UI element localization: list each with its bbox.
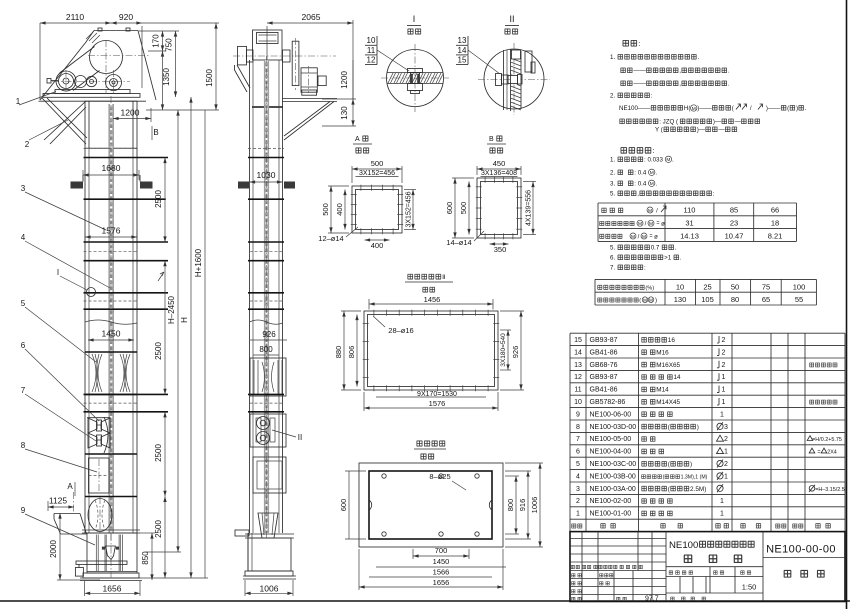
svg-text:75: 75 [762,282,770,291]
svg-text:): ) [690,461,692,468]
svg-text:1576: 1576 [102,226,121,236]
svg-text:6: 6 [21,341,26,350]
svg-text:600: 600 [339,499,348,512]
svg-text:1: 1 [722,374,726,381]
svg-text:NE100-03B-00: NE100-03B-00 [590,473,636,480]
svg-text:.: . [672,157,674,164]
svg-text:M: M [638,221,642,227]
svg-text:2500: 2500 [154,520,163,538]
svg-text:2X4: 2X4 [827,450,837,456]
svg-text:M16: M16 [656,349,669,356]
svg-text:400: 400 [335,203,344,216]
svg-text:8: 8 [21,441,26,450]
svg-text:12: 12 [367,55,376,64]
svg-text:806: 806 [347,346,356,359]
svg-text:2: 2 [722,362,726,369]
svg-text:14: 14 [458,46,467,55]
svg-text:50: 50 [731,282,739,291]
svg-text:3X152=456: 3X152=456 [359,170,395,177]
svg-text:,: , [679,68,681,75]
svg-text:2: 2 [722,349,726,356]
svg-text:3X136=408: 3X136=408 [481,170,517,177]
svg-text:2065: 2065 [302,12,321,22]
svg-text:1: 1 [720,498,724,505]
svg-text:A: A [67,482,73,491]
svg-text:12: 12 [574,374,582,381]
svg-text:M: M [666,157,670,163]
svg-text:I: I [413,14,416,24]
svg-text:0.7: 0.7 [651,245,660,252]
svg-text::: : [638,39,640,48]
svg-text:M: M [631,234,635,240]
svg-text:1350: 1350 [162,68,171,86]
svg-text:400: 400 [371,241,384,250]
svg-text:)——: )—— [697,105,712,112]
svg-text:23: 23 [730,219,738,228]
svg-text:NE100-04-00: NE100-04-00 [590,449,632,456]
svg-text:1656: 1656 [103,584,122,594]
svg-text:3: 3 [724,424,728,431]
svg-text:9X170=1530: 9X170=1530 [417,391,457,398]
svg-text:31: 31 [685,219,693,228]
svg-text:)—: )— [697,127,706,134]
svg-text:1: 1 [720,511,724,518]
svg-text:NE100-00-00: NE100-00-00 [766,544,836,556]
svg-text:55: 55 [795,295,803,304]
svg-text:2.: 2. [610,170,615,177]
svg-text:2.: 2. [610,93,615,100]
svg-text:.: . [655,181,657,188]
svg-text:Ⅱ: Ⅱ [442,274,445,281]
svg-text:15: 15 [574,337,582,344]
svg-text::: : [644,265,646,272]
svg-text:14: 14 [674,374,682,381]
svg-text:——: —— [633,81,646,88]
svg-text:800: 800 [259,345,273,354]
svg-text:)—: )— [713,119,722,126]
svg-text::: : [651,93,653,100]
svg-text:NE100: NE100 [669,540,698,551]
svg-text:2110: 2110 [66,12,85,22]
svg-text:85: 85 [730,206,738,215]
svg-text:4X139=556: 4X139=556 [526,190,533,226]
svg-text:: JZQ (: : JZQ ( [659,119,679,126]
svg-text:920: 920 [119,12,133,22]
svg-text:B: B [489,136,494,143]
svg-text:5: 5 [576,461,580,468]
svg-text:1200: 1200 [121,108,140,118]
svg-text:12–ø14: 12–ø14 [318,234,343,243]
svg-text:NE100-06-00: NE100-06-00 [590,411,632,418]
svg-text:14: 14 [574,349,582,356]
svg-text:.: . [728,68,730,75]
svg-text:GB93-87: GB93-87 [590,337,618,344]
svg-text:6.: 6. [610,255,615,262]
svg-text:2.5M): 2.5M) [690,486,706,493]
svg-text:ø: ø [661,222,665,228]
svg-text:10: 10 [574,399,582,406]
svg-text:GB41-86: GB41-86 [590,387,618,394]
svg-text:3: 3 [576,486,580,493]
svg-text:1566: 1566 [433,568,450,577]
svg-text:.: . [655,170,657,177]
svg-text:1: 1 [720,411,724,418]
svg-text:H+1600: H+1600 [194,248,203,277]
svg-text:105: 105 [701,295,714,304]
svg-text:7: 7 [21,386,26,395]
svg-text:110: 110 [684,206,696,215]
svg-text:18: 18 [771,219,779,228]
svg-text:): ) [796,105,798,112]
svg-text:NE100-05-00: NE100-05-00 [590,436,632,443]
svg-text:1006: 1006 [530,497,539,514]
svg-text:8: 8 [576,424,580,431]
svg-text:——: —— [633,68,646,75]
svg-text:: 0.4: : 0.4 [634,170,647,177]
svg-text:1: 1 [722,387,726,394]
svg-text:500: 500 [459,202,468,215]
svg-text:1: 1 [724,449,728,456]
svg-text:M: M [649,221,653,227]
svg-text:25: 25 [703,282,711,291]
svg-text:NE100-02-00: NE100-02-00 [590,498,632,505]
svg-text:1006: 1006 [260,584,279,594]
svg-text:100: 100 [793,282,806,291]
svg-text:1: 1 [16,97,21,106]
svg-text:10.47: 10.47 [725,231,744,240]
svg-text:M: M [649,298,653,304]
svg-text:1.: 1. [610,157,615,164]
svg-text:2: 2 [576,498,580,505]
svg-text:130: 130 [340,106,349,120]
svg-text:GB93-87: GB93-87 [590,374,618,381]
svg-text:ø: ø [654,234,658,240]
svg-text:1450: 1450 [102,329,121,339]
svg-text:7.: 7. [610,265,615,272]
svg-text:2: 2 [25,140,30,149]
svg-text:170: 170 [152,34,161,48]
svg-text:2500: 2500 [154,342,163,360]
svg-text:1450: 1450 [433,557,450,566]
svg-text:1.: 1. [610,54,615,61]
svg-text:850: 850 [141,551,150,565]
svg-text:M16X65: M16X65 [656,362,680,369]
svg-text:M: M [642,234,646,240]
svg-text:600: 600 [445,202,454,215]
svg-text:66: 66 [771,206,779,215]
svg-text:926: 926 [511,346,520,359]
svg-text:1656: 1656 [433,578,450,587]
svg-text:800: 800 [506,499,515,512]
svg-text:1125: 1125 [49,496,68,506]
svg-text:3.: 3. [610,181,615,188]
svg-text:11: 11 [574,387,581,394]
svg-text:5.: 5. [610,245,615,252]
svg-text:2: 2 [722,337,726,344]
svg-text:NE100——: NE100—— [619,105,651,112]
svg-text:,: , [637,191,639,198]
svg-text:2: 2 [724,461,728,468]
svg-text:1: 1 [576,511,580,518]
svg-text:1030: 1030 [257,170,276,180]
svg-text:9: 9 [21,506,26,515]
svg-text:1576: 1576 [429,399,446,408]
svg-text:M14X45: M14X45 [656,399,680,406]
svg-text:.: . [675,245,677,252]
svg-text:1680: 1680 [102,163,121,173]
svg-text:4: 4 [576,473,580,480]
svg-text:916: 916 [518,499,527,512]
svg-text:65: 65 [762,295,770,304]
svg-text:NE100-03A-00: NE100-03A-00 [590,486,636,493]
svg-text:13: 13 [574,362,582,369]
svg-text:NE100-01-00: NE100-01-00 [590,511,632,518]
svg-text:880: 880 [334,346,343,359]
svg-text:M14: M14 [656,387,669,394]
svg-text:8–ø25: 8–ø25 [429,472,450,481]
svg-text:11: 11 [367,46,376,55]
svg-text:350: 350 [494,245,507,254]
svg-text:5: 5 [21,299,26,308]
svg-text:: 0.033: : 0.033 [644,157,663,164]
svg-text:.: . [728,81,730,88]
svg-text::: : [713,191,715,198]
svg-text:500: 500 [321,203,330,216]
svg-text:=: = [649,233,652,239]
svg-text:6: 6 [576,449,580,456]
svg-text:.: . [805,105,807,112]
svg-text:1500: 1500 [205,69,214,87]
svg-text:): ) [655,298,657,304]
svg-text:3X180=540: 3X180=540 [500,333,507,367]
svg-text:H–2450: H–2450 [167,295,176,324]
svg-text:700: 700 [435,546,448,555]
svg-text:M: M [650,170,654,176]
svg-text:1.3M),1 (M): 1.3M),1 (M) [681,474,708,480]
svg-text:1: 1 [724,473,728,480]
svg-text:4: 4 [21,233,26,242]
svg-text:GB41-86: GB41-86 [590,349,618,356]
svg-text:.: . [698,54,700,61]
svg-text:NE100-03D-00: NE100-03D-00 [590,424,637,431]
svg-text:.: . [680,255,682,262]
svg-text:8.21: 8.21 [768,231,783,240]
svg-text:3X152=456: 3X152=456 [406,191,413,227]
svg-text:: 0.4: : 0.4 [634,181,647,188]
svg-text:130: 130 [674,295,687,304]
svg-text:I: I [57,268,59,277]
svg-text:16: 16 [668,337,676,344]
svg-text:2500: 2500 [154,444,163,462]
svg-text:II: II [509,14,514,24]
svg-text:450: 450 [493,159,506,168]
svg-text:1200: 1200 [340,71,349,89]
svg-text:GB68-76: GB68-76 [590,362,618,369]
svg-text:A: A [355,136,360,143]
svg-text:II: II [298,433,302,442]
svg-text:): ) [697,424,699,431]
svg-text:(: ( [663,474,665,480]
svg-text:/: / [750,105,752,112]
svg-text:,: , [679,81,681,88]
svg-text:)——: )—— [766,105,781,112]
svg-text:7: 7 [576,436,580,443]
svg-text:2: 2 [724,436,728,443]
svg-text::: : [652,146,654,155]
svg-text:926: 926 [262,330,276,339]
svg-text:NE100-03C-00: NE100-03C-00 [590,461,637,468]
svg-text:1: 1 [722,399,726,406]
svg-text:10: 10 [367,36,376,45]
svg-text:=: = [656,221,659,227]
svg-text:15: 15 [458,55,467,64]
svg-text:M: M [692,106,696,112]
svg-text:M: M [650,181,654,187]
svg-text:=H–3.15/2.5: =H–3.15/2.5 [815,487,845,493]
svg-text:(%): (%) [645,285,654,291]
svg-text:>1: >1 [664,255,672,262]
svg-text:13: 13 [458,36,467,45]
svg-text:80: 80 [731,295,739,304]
svg-text:(: ( [639,298,641,304]
svg-text:10: 10 [676,282,684,291]
svg-text:M: M [648,208,652,214]
svg-text:28–ø16: 28–ø16 [388,326,413,335]
svg-text:B: B [153,128,158,137]
svg-text:97.7: 97.7 [645,596,659,603]
svg-text:2000: 2000 [49,540,58,558]
svg-text:GB5782-86: GB5782-86 [590,399,626,406]
svg-text:—: — [735,119,742,126]
svg-text:1:50: 1:50 [742,583,757,592]
svg-text:14–ø14: 14–ø14 [446,238,471,247]
svg-text:750: 750 [165,38,174,52]
svg-text:H: H [180,317,189,323]
svg-text:Y (: Y ( [655,127,664,134]
svg-text:—: — [718,127,725,134]
svg-text:14.13: 14.13 [680,231,699,240]
svg-text:1456: 1456 [424,295,441,304]
svg-text:500: 500 [371,159,384,168]
svg-text:=H/0.2+5.75: =H/0.2+5.75 [812,437,842,443]
svg-text:2500: 2500 [154,190,163,208]
svg-text:3: 3 [21,184,26,193]
svg-text:=: = [817,450,820,456]
svg-text:M: M [643,298,647,304]
svg-text:5.: 5. [610,191,615,198]
svg-text:9: 9 [576,411,580,418]
